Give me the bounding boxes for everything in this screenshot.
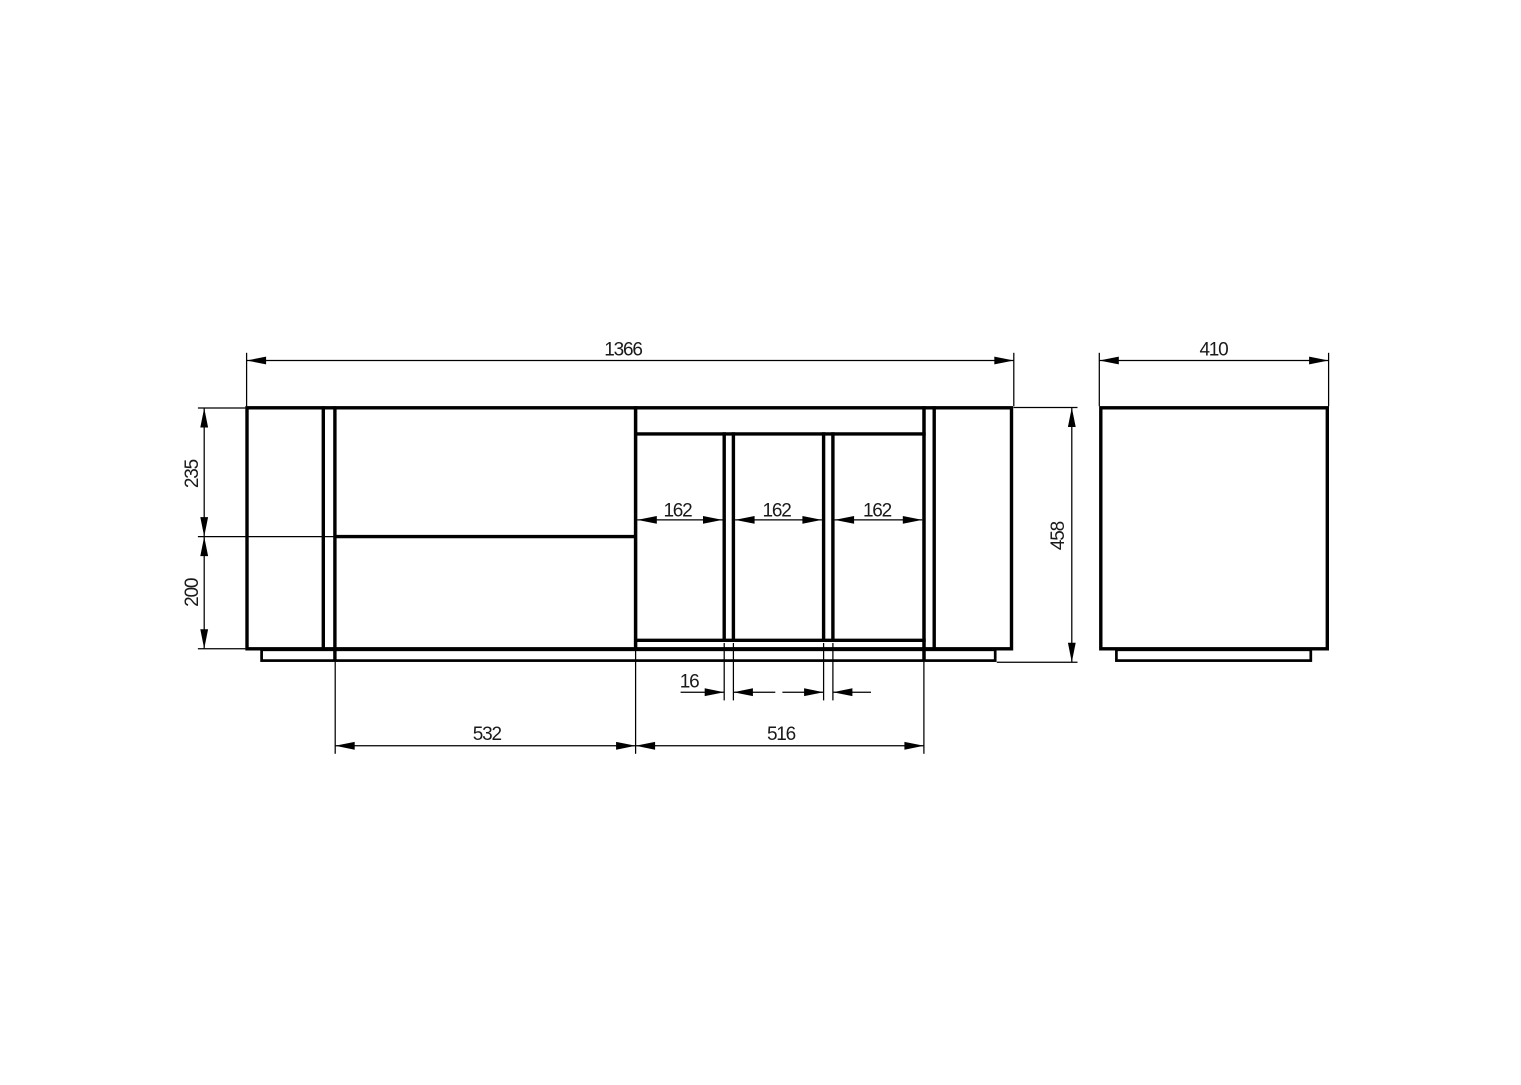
svg-text:235: 235 xyxy=(182,459,203,488)
svg-text:516: 516 xyxy=(767,724,796,745)
svg-text:162: 162 xyxy=(763,501,792,522)
svg-text:200: 200 xyxy=(182,578,203,607)
svg-text:162: 162 xyxy=(663,501,692,522)
svg-text:458: 458 xyxy=(1048,521,1069,550)
svg-text:410: 410 xyxy=(1199,339,1228,360)
svg-text:1366: 1366 xyxy=(604,339,642,360)
svg-text:16: 16 xyxy=(680,672,699,693)
svg-text:532: 532 xyxy=(473,724,502,745)
svg-text:162: 162 xyxy=(863,501,892,522)
